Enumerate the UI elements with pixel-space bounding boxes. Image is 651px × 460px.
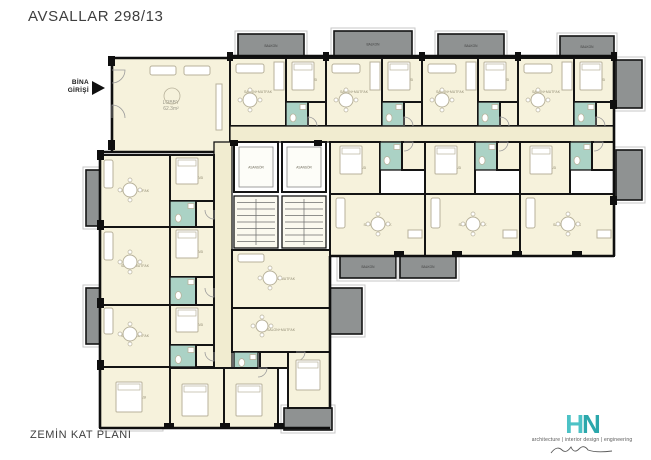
wall-pier [611,52,617,61]
dining-table [243,93,257,107]
chair [576,222,580,226]
logo-tagline: architecture | interior design | enginee… [517,437,647,443]
balcony [330,288,362,334]
chair [344,88,348,92]
signature [547,444,617,456]
room [497,142,520,170]
chair [566,212,570,216]
chair [258,98,262,102]
wall-pier [314,140,322,146]
sink [584,145,590,150]
sink [394,145,400,150]
toilet [479,156,485,164]
room [592,142,614,170]
chair [260,333,264,337]
chair [556,222,560,226]
bed-pillow [178,310,196,316]
room-label: SALON+MUTFAK [267,328,296,332]
sink [250,355,256,360]
sink [396,105,402,110]
chair [268,266,272,270]
sofa [184,66,210,75]
chair [248,88,252,92]
chair [128,198,132,202]
chair [118,260,122,264]
kitchen-counter [597,230,611,238]
dining-table [123,255,137,269]
chair [248,108,252,112]
sofa [428,64,456,73]
balcony [616,150,642,200]
chair [118,332,122,336]
wall-pier [108,56,115,66]
room [308,102,326,126]
wall-pier [97,298,104,308]
wall-pier [227,52,233,61]
wall-pier [572,251,582,257]
wall-pier [452,251,462,257]
wall-pier [419,52,425,61]
floor-plan-drawing: BALKONBALKONBALKONBALKONBALKONBALKONLOBB… [0,0,651,460]
wall-pier [512,251,522,257]
chair [536,88,540,92]
bed-pillow [298,362,318,368]
dining-table [263,271,277,285]
toilet [482,114,488,122]
balcony-label: BALKON [265,44,279,48]
dining-table [339,93,353,107]
chair [461,222,465,226]
chair [278,276,282,280]
balcony-label: BALKON [422,265,436,269]
chair [450,98,454,102]
wall-pier [274,423,284,429]
dining-table [531,93,545,107]
toilet [386,114,392,122]
sink [188,204,194,209]
elevator-label: ASANSÖR [296,165,312,169]
sofa [524,64,552,73]
sofa [332,64,360,73]
sofa [150,66,176,75]
bed-pillow [238,386,260,392]
wall-pier [610,100,617,109]
chair [376,212,380,216]
kitchen-counter [503,230,517,238]
sink [588,105,594,110]
dining-table [561,217,575,231]
bed-pillow [342,148,360,154]
wall-pier [610,196,617,205]
chair [334,98,338,102]
sink [300,105,306,110]
chair [366,222,370,226]
balcony-label: BALKON [465,44,479,48]
chair [430,98,434,102]
bed-pillow [532,148,550,154]
sink [188,348,194,353]
bed-pillow [184,386,206,392]
wall-pier [323,52,329,61]
chair [386,222,390,226]
kitchen-counter [562,62,572,90]
toilet [239,359,245,367]
chair [128,178,132,182]
floor-plan-page: AVSALLAR 298/13 BİNA GİRİŞİ BALKONBALKON… [0,0,651,460]
chair [354,98,358,102]
bed-pillow [294,64,312,70]
chair [471,232,475,236]
wall-pier [230,140,238,146]
sofa [336,198,345,228]
chair [260,315,264,319]
sink [188,280,194,285]
room [214,142,232,380]
sink [489,145,495,150]
chair [526,98,530,102]
room [260,352,288,368]
chair [376,232,380,236]
chair [138,188,142,192]
chair [481,222,485,226]
dining-table [371,217,385,231]
balcony-label: BALKON [362,265,376,269]
sofa [431,198,440,228]
room [230,126,614,142]
dining-table [123,183,137,197]
sofa [236,64,264,73]
chair [471,212,475,216]
bed-pillow [118,384,140,390]
sofa [104,308,113,334]
bed-pillow [486,64,504,70]
chair [440,88,444,92]
chair [546,98,550,102]
kitchen-counter [408,230,422,238]
floor-plan-caption: ZEMİN KAT PLANI [30,429,132,441]
wall-pier [97,220,104,230]
toilet [578,114,584,122]
balcony-label: BALKON [581,45,595,49]
chair [566,232,570,236]
chair [251,324,255,328]
kitchen-counter [466,62,476,90]
logo-letter-n: N [582,409,599,439]
room [196,277,214,305]
chair [344,108,348,112]
chair [536,108,540,112]
chair [138,260,142,264]
bed-pillow [437,148,455,154]
chair [128,322,132,326]
logo-monogram: HN [517,411,647,437]
chair [128,250,132,254]
toilet [175,214,181,222]
chair [269,324,273,328]
toilet [290,114,296,122]
chair [440,108,444,112]
wall-pier [394,251,404,257]
wall-pier [515,52,521,61]
chair [258,276,262,280]
toilet [175,356,181,364]
sofa [104,160,113,188]
chair [128,342,132,346]
sofa [526,198,535,228]
wall-pier [108,140,115,150]
toilet [574,156,580,164]
elevator-label: ASANSÖR [248,165,264,169]
chair [138,332,142,336]
bed-pillow [178,160,196,166]
logo-letter-h: H [565,409,582,439]
dining-table [256,320,268,332]
chair [118,188,122,192]
wall-pier [164,423,174,429]
balcony [616,60,642,108]
dining-table [466,217,480,231]
room [196,201,214,227]
sink [492,105,498,110]
sofa [238,254,264,262]
sofa [104,232,113,260]
dining-table [123,327,137,341]
wall-pier [97,360,104,370]
dining-table [435,93,449,107]
chair [268,286,272,290]
kitchen-counter [274,62,284,90]
bed-pillow [582,64,600,70]
balcony-label: BALKON [367,43,381,47]
room [402,142,425,170]
wall-pier [220,423,230,429]
wall-pier [97,150,104,160]
chair [238,98,242,102]
bed-pillow [178,232,196,238]
room [404,102,422,126]
toilet [384,156,390,164]
room [196,345,214,367]
chair [128,270,132,274]
architect-logo: HN architecture | interior design | engi… [517,411,647,456]
kitchen-counter [370,62,380,90]
bed-pillow [390,64,408,70]
room [500,102,518,126]
reception-desk [216,84,222,130]
toilet [175,291,181,299]
